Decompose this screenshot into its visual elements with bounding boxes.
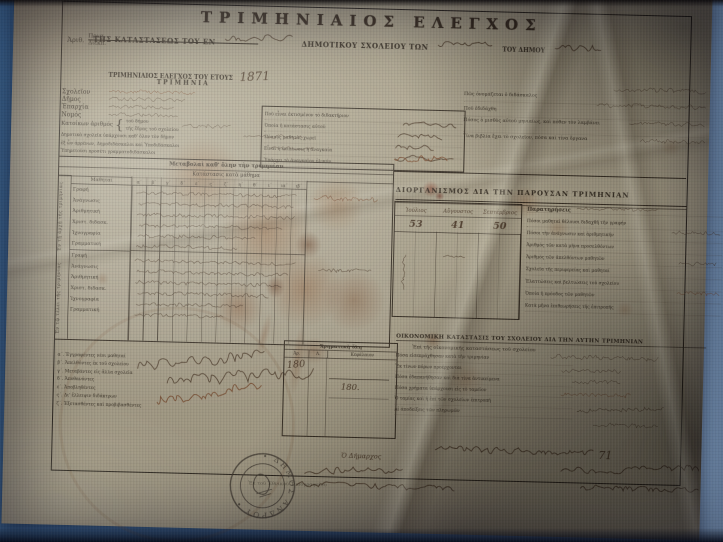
month-attendance-value: 41 xyxy=(437,217,479,234)
funds-col2: Λ. xyxy=(309,350,328,358)
photo-edge-top xyxy=(0,0,723,7)
subjects-group1: ΓραφήἈνάγνωσιςἈριθμητικήΧριστ. διδασκ.Ἰχ… xyxy=(70,184,132,250)
class-column-letter: γ΄ xyxy=(161,179,176,188)
class-column-letter: β΄ xyxy=(146,179,161,188)
handwriting-scribble xyxy=(596,100,706,113)
inhabitants-label: Κατοίκων ἀριθμός xyxy=(61,120,113,127)
photo-edge-bottom xyxy=(0,528,723,542)
students-table: Μεταβολαὶ καθ' ὅλην τὴν τριμηνίαν Κατάστ… xyxy=(54,156,394,348)
handwriting-scribble xyxy=(676,288,720,300)
handwriting-scribble xyxy=(560,390,632,402)
subject-row-label: Γραμματική xyxy=(72,238,130,250)
handwritten-figures xyxy=(133,309,223,323)
class-column-letter: θ΄ xyxy=(248,181,263,190)
handwriting-scribble xyxy=(436,35,494,55)
brace-glyph: { xyxy=(115,119,124,130)
monthly-attendance-table: ἸούλιοςΑὔγουστοςΣεπτέμβριος 534150 xyxy=(392,201,523,320)
month-attendance-value: 53 xyxy=(395,216,437,233)
handwriting-scribble xyxy=(317,265,371,278)
handwriting-scribble xyxy=(578,477,698,499)
funds-value-big: 180 xyxy=(286,358,305,371)
funds-value-small: 180. xyxy=(341,382,360,392)
handwriting-scribble xyxy=(560,366,621,378)
protocol-label: Ἀριθ. xyxy=(67,35,84,43)
handwriting-scribble xyxy=(392,149,447,169)
paper-sheet: ΤΡΙΜΗΝΙΑΙΟΣ ΕΛΕΓΧΟΣ ΤΗΣ ΚΑΤΑΣΤΑΣΕΩΣ ΤΟΥ … xyxy=(1,0,712,540)
handwriting-scribble xyxy=(571,377,621,389)
remarks-heading: Παρατηρήσεις xyxy=(527,206,571,213)
class-column-letter: ια΄ xyxy=(277,182,292,191)
funds-col1: Ἀρ. xyxy=(285,350,310,358)
handwriting-scribble xyxy=(553,38,601,58)
class-column-letter: ιβ΄ xyxy=(291,182,306,191)
field-prefecture-label: Νομός xyxy=(61,111,104,119)
teacher-q2: Ποῦ ἐδιδάχθη xyxy=(464,106,497,112)
organization-heading: ΔΙΟΡΓΑΝΙΣΜΟΣ ΔΙΑ ΤΗΝ ΠΑΡΟΥΣΑΝ ΤΡΙΜΗΝΙΑΝ xyxy=(396,186,630,200)
subjects-group2: ΓραφήἈνάγνωσιςἈριθμητικήΧριστ. διδασκ.Ἰχ… xyxy=(68,250,130,316)
vertical-handwriting xyxy=(397,255,409,291)
funds-box: Χρηματικὴ ὕλη Ἀρ. Λ. Κεφάλαιον 180 180. xyxy=(282,340,398,439)
class-column-letter: η΄ xyxy=(233,181,248,190)
handwriting-scribble xyxy=(639,136,705,148)
handwriting-scribble xyxy=(592,420,658,432)
class-column-letter: ε΄ xyxy=(190,180,205,189)
subtitle-mid: ΔΗΜΟΤΙΚΟΥ ΣΧΟΛΕΙΟΥ ΤΩΝ xyxy=(301,40,428,52)
handwritten-figures xyxy=(135,240,237,254)
teacher-info-block: Πῶς ὀνομάζεται ὁ διδάσκαλος Ποῦ ἐδιδάχθη… xyxy=(462,87,706,165)
funds-col3: Κεφάλαιον xyxy=(328,351,397,360)
month-attendance-value: 50 xyxy=(479,218,521,235)
handwriting-scribble xyxy=(433,440,593,463)
teacher-q1: Πῶς ὀνομάζεται ὁ διδάσκαλος xyxy=(464,91,537,98)
class-column-letter: α΄ xyxy=(132,178,147,187)
economic-section: ΟΙΚΟΝΟΜΙΚΗ ΚΑΤΑΣΤΑΣΙΣ ΤΟΥ ΣΧΟΛΕΙΟΥ ΔΙΑ Τ… xyxy=(394,333,720,443)
funds-inner-line-2 xyxy=(329,398,389,400)
handwriting-scribble xyxy=(442,250,466,262)
handwriting-scribble xyxy=(678,259,717,270)
handwriting-scribble xyxy=(671,228,721,240)
subject-row-label: Γραμματική xyxy=(70,304,128,316)
handwriting-scribble xyxy=(628,118,705,130)
class-column-letter: ζ΄ xyxy=(219,180,234,189)
class-column-letter: ς΄ xyxy=(204,180,219,189)
handwriting-scribble xyxy=(575,203,658,215)
handwriting-scribble xyxy=(313,193,379,207)
mayor-label: Ὁ Δήμαρχος xyxy=(341,452,381,461)
subtitle-post: ΤΟΥ ΔΗΜΟΥ xyxy=(502,46,545,54)
funds-inner-line xyxy=(329,378,389,380)
class-column-letter: ι΄ xyxy=(262,181,277,190)
class-column-letter: δ΄ xyxy=(175,179,190,188)
photographed-document: ΤΡΙΜΗΝΙΑΙΟΣ ΕΛΕΓΧΟΣ ΤΗΣ ΚΑΤΑΣΤΑΣΕΩΣ ΤΟΥ … xyxy=(0,0,723,542)
handwriting-scribble xyxy=(181,121,231,133)
remarks-block: Παρατηρήσεις Πόσοι μαθηταὶ θέλουσι διδαχ… xyxy=(524,202,723,329)
handwriting-scribble xyxy=(613,85,707,98)
